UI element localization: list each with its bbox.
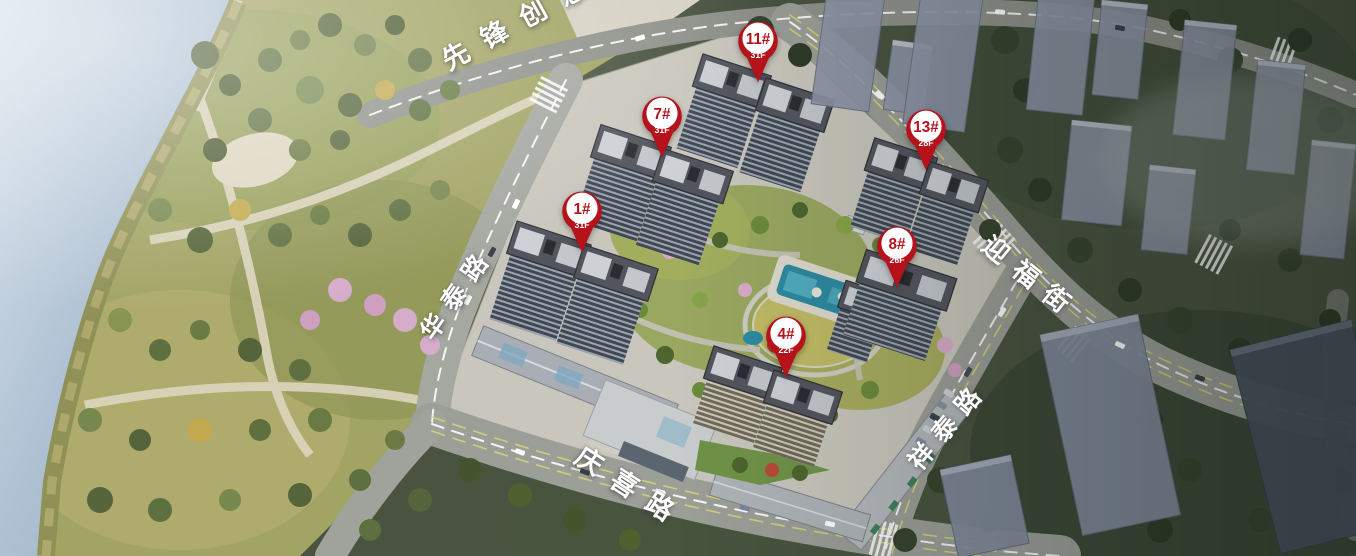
pin-floor-count: 28F [918, 138, 934, 148]
pin-building-number: 8# [889, 236, 906, 253]
pin-floor-count: 26F [889, 255, 905, 265]
pin-building-number: 1# [574, 201, 591, 218]
building-pin-1[interactable]: 1# 31F [559, 190, 605, 257]
aerial-rendering [0, 0, 1356, 556]
aerial-masterplan: 先锋创意 华泰路 迎福街 祥泰路 庆喜路 11# 31F 7# 31F 13# … [0, 0, 1356, 556]
building-pin-4[interactable]: 4# 22F [763, 315, 809, 382]
pin-building-number: 13# [913, 119, 939, 136]
pin-building-number: 4# [778, 326, 795, 343]
atmosphere [0, 0, 1356, 556]
pin-floor-count: 22F [778, 345, 794, 355]
pin-building-number: 7# [654, 106, 671, 123]
building-pin-8[interactable]: 8# 26F [874, 225, 920, 292]
pin-building-number: 11# [746, 31, 771, 48]
pin-floor-count: 31F [750, 50, 766, 60]
building-pin-13[interactable]: 13# 28F [903, 108, 949, 175]
pin-floor-count: 31F [574, 220, 590, 230]
building-pin-7[interactable]: 7# 31F [639, 95, 685, 162]
building-pin-11[interactable]: 11# 31F [735, 20, 781, 87]
pin-floor-count: 31F [654, 125, 670, 135]
